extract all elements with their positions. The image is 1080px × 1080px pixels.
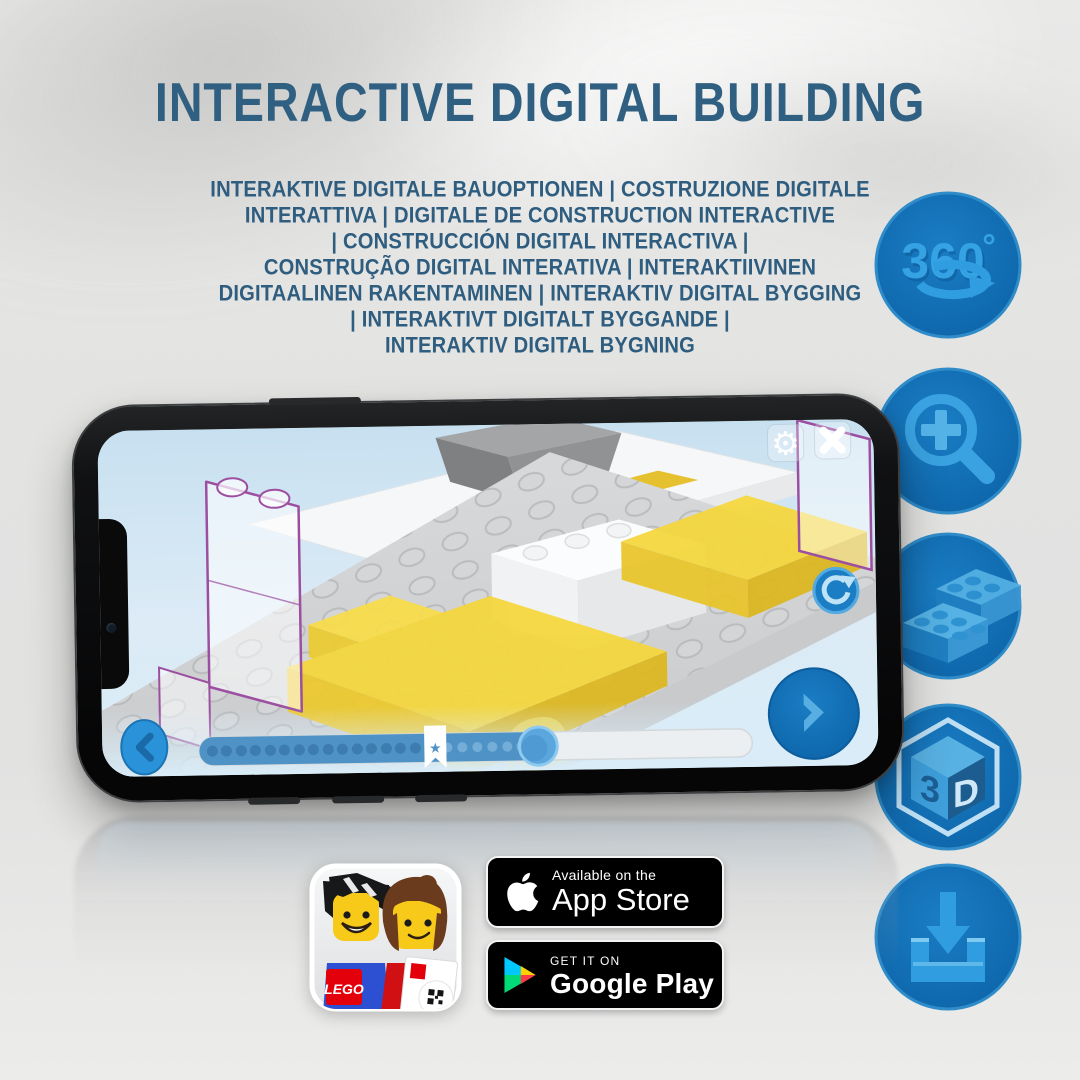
app-store-tagline: Available on the: [552, 868, 690, 883]
google-play-icon: [502, 955, 538, 995]
phone-notch: [97, 519, 129, 689]
previous-step-button[interactable]: [121, 720, 168, 775]
page-title: INTERACTIVE DIGITAL BUILDING: [0, 76, 1080, 131]
front-camera: [106, 623, 116, 633]
lego-app-icon[interactable]: LEGO: [309, 863, 462, 1012]
phone-volume-button: [248, 797, 300, 805]
google-play-tagline: GET IT ON: [550, 954, 714, 968]
phone-volume-button: [332, 796, 384, 804]
phone-power-button: [415, 794, 467, 802]
app-store-label: App Store: [552, 883, 690, 916]
settings-button[interactable]: ⚙: [767, 424, 804, 463]
bookmark-star-icon: ★: [429, 741, 442, 757]
arrow-shaft: [940, 892, 956, 930]
phone-screen: ⚙: [97, 419, 878, 777]
phone-side-button: [269, 397, 361, 405]
close-button[interactable]: [814, 421, 851, 459]
progress-slider-handle[interactable]: [519, 727, 558, 766]
google-play-label: Google Play: [550, 968, 714, 999]
plus-v: [935, 410, 947, 450]
degree-symbol: °: [982, 228, 996, 266]
cube-d-label: D: [953, 769, 979, 816]
gear-icon[interactable]: ⚙: [771, 424, 800, 463]
lego-logo-text: LEGO: [324, 981, 364, 997]
page-title-text: INTERACTIVE DIGITAL BUILDING: [155, 72, 925, 135]
next-step-button[interactable]: [768, 668, 859, 760]
cube-3-label: 3: [920, 766, 940, 811]
360-rotation-icon: 360 360 °: [873, 190, 1023, 340]
lego-3d-scene: [97, 419, 878, 777]
rotate-button[interactable]: [814, 568, 859, 613]
apple-icon: [502, 869, 540, 915]
instruction-card: [400, 956, 458, 1012]
google-play-badge[interactable]: GET IT ON Google Play: [486, 940, 724, 1010]
smartphone: ⚙: [71, 393, 905, 804]
app-store-badge[interactable]: Available on the App Store: [486, 856, 724, 928]
